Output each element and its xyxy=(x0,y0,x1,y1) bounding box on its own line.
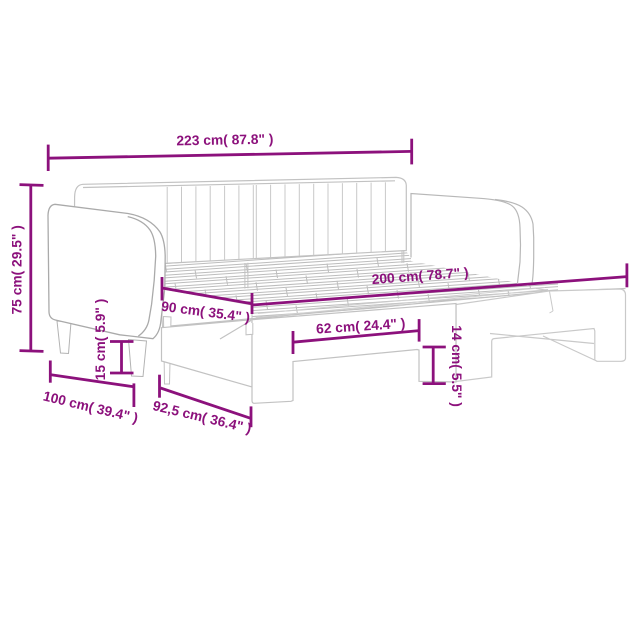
svg-text:14 cm( 5.5" ): 14 cm( 5.5" ) xyxy=(449,325,464,407)
svg-text:15 cm( 5.9" ): 15 cm( 5.9" ) xyxy=(93,299,108,381)
svg-text:75 cm( 29.5" ): 75 cm( 29.5" ) xyxy=(9,225,24,314)
svg-text:223 cm( 87.8" ): 223 cm( 87.8" ) xyxy=(176,132,273,149)
